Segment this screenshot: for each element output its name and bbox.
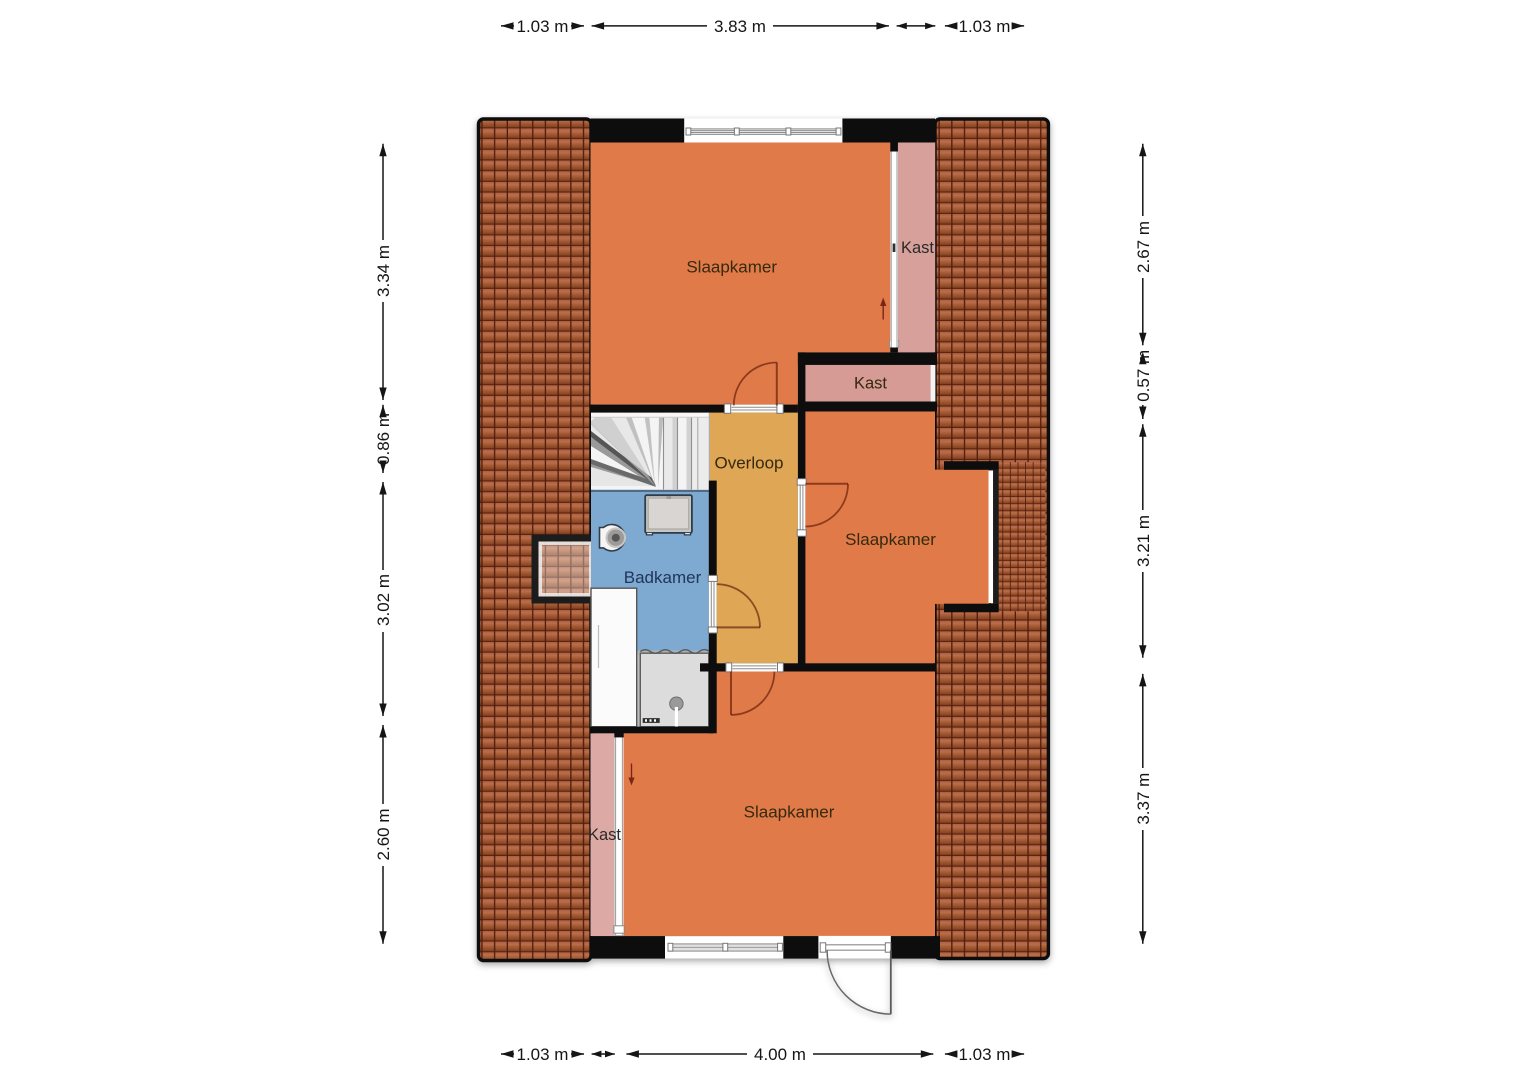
svg-text:Slaapkamer: Slaapkamer (744, 803, 835, 822)
svg-text:3.02 m: 3.02 m (374, 574, 393, 626)
svg-text:3.37 m: 3.37 m (1134, 773, 1153, 825)
svg-text:Kast: Kast (854, 375, 887, 393)
svg-text:Slaapkamer: Slaapkamer (845, 530, 936, 549)
svg-text:Kast: Kast (588, 826, 621, 844)
svg-text:3.83 m: 3.83 m (714, 17, 766, 36)
svg-text:0.86 m: 0.86 m (374, 413, 393, 465)
svg-text:4.00 m: 4.00 m (754, 1045, 806, 1064)
svg-text:1.03 m: 1.03 m (959, 17, 1011, 36)
svg-text:2.67 m: 2.67 m (1134, 221, 1153, 273)
svg-text:3.34 m: 3.34 m (374, 245, 393, 297)
svg-text:Overloop: Overloop (715, 454, 784, 473)
svg-text:Slaapkamer: Slaapkamer (686, 258, 777, 277)
svg-text:3.21 m: 3.21 m (1134, 515, 1153, 567)
svg-text:1.03 m: 1.03 m (517, 1045, 569, 1064)
svg-text:1.03 m: 1.03 m (517, 17, 569, 36)
svg-text:Kast: Kast (901, 239, 934, 257)
svg-text:Badkamer: Badkamer (624, 568, 702, 587)
svg-text:0.57 m: 0.57 m (1134, 350, 1153, 402)
svg-text:1.03 m: 1.03 m (959, 1045, 1011, 1064)
svg-text:2.60 m: 2.60 m (374, 809, 393, 861)
